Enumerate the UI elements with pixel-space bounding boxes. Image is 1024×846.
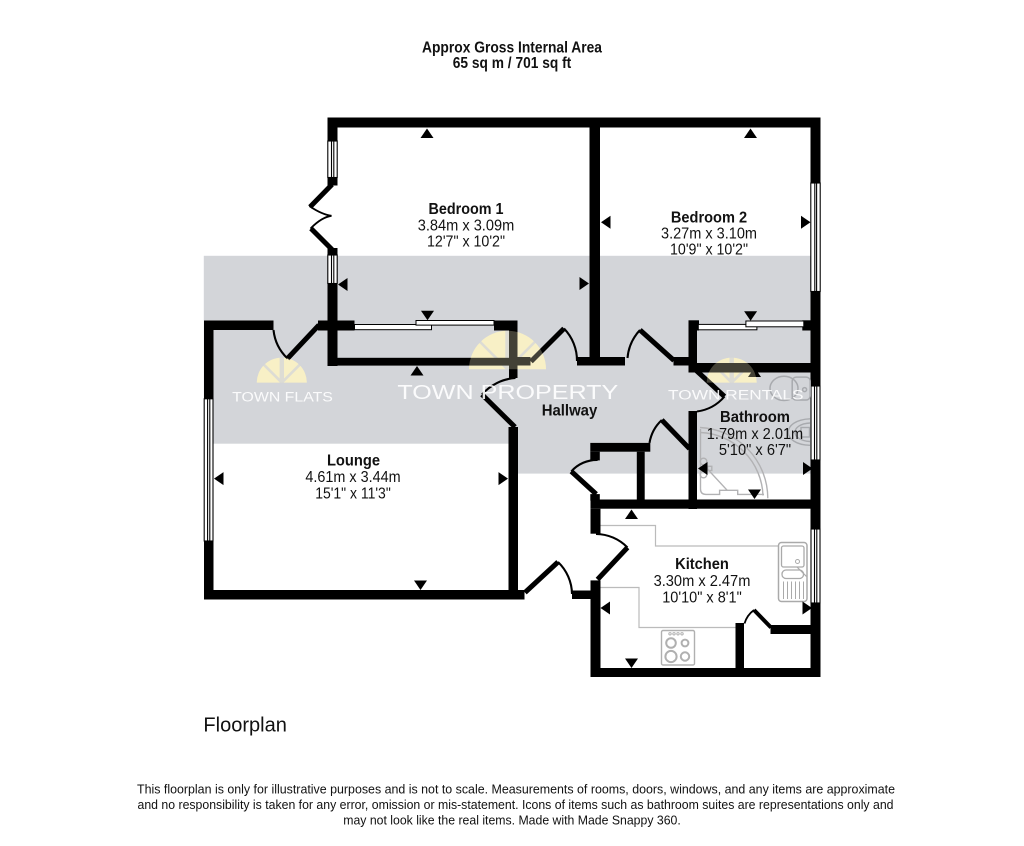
svg-text:10'10" x 8'1": 10'10" x 8'1" [662,590,742,607]
svg-text:TOWN PROPERTY: TOWN PROPERTY [397,382,618,404]
svg-text:12'7" x 10'2": 12'7" x 10'2" [427,234,505,251]
svg-text:65 sq m / 701 sq ft: 65 sq m / 701 sq ft [453,55,572,72]
svg-text:TOWN FLATS: TOWN FLATS [232,390,333,405]
svg-text:Bedroom 2: Bedroom 2 [671,209,747,226]
svg-text:Bedroom 1: Bedroom 1 [429,201,504,218]
svg-text:and no responsibility is taken: and no responsibility is taken for any e… [138,798,894,812]
svg-text:3.30m x 2.47m: 3.30m x 2.47m [654,573,751,590]
svg-text:Kitchen: Kitchen [675,556,729,573]
svg-text:Floorplan: Floorplan [203,714,287,737]
svg-text:Bathroom: Bathroom [720,409,790,426]
svg-text:This floorplan is only for ill: This floorplan is only for illustrative … [137,783,895,797]
svg-text:5'10" x 6'7": 5'10" x 6'7" [719,442,791,459]
svg-text:10'9" x 10'2": 10'9" x 10'2" [670,241,748,258]
svg-text:3.27m x 3.10m: 3.27m x 3.10m [661,225,757,242]
svg-text:15'1" x 11'3": 15'1" x 11'3" [315,486,391,503]
svg-text:4.61m x 3.44m: 4.61m x 3.44m [305,469,400,486]
svg-text:3.84m x 3.09m: 3.84m x 3.09m [418,217,515,234]
svg-text:Hallway: Hallway [542,403,598,420]
svg-text:may not look like the real ite: may not look like the real items. Made w… [343,813,681,827]
svg-text:TOWN RENTALS: TOWN RENTALS [668,388,804,403]
svg-text:Lounge: Lounge [327,453,380,470]
svg-text:1.79m x 2.01m: 1.79m x 2.01m [707,426,803,443]
